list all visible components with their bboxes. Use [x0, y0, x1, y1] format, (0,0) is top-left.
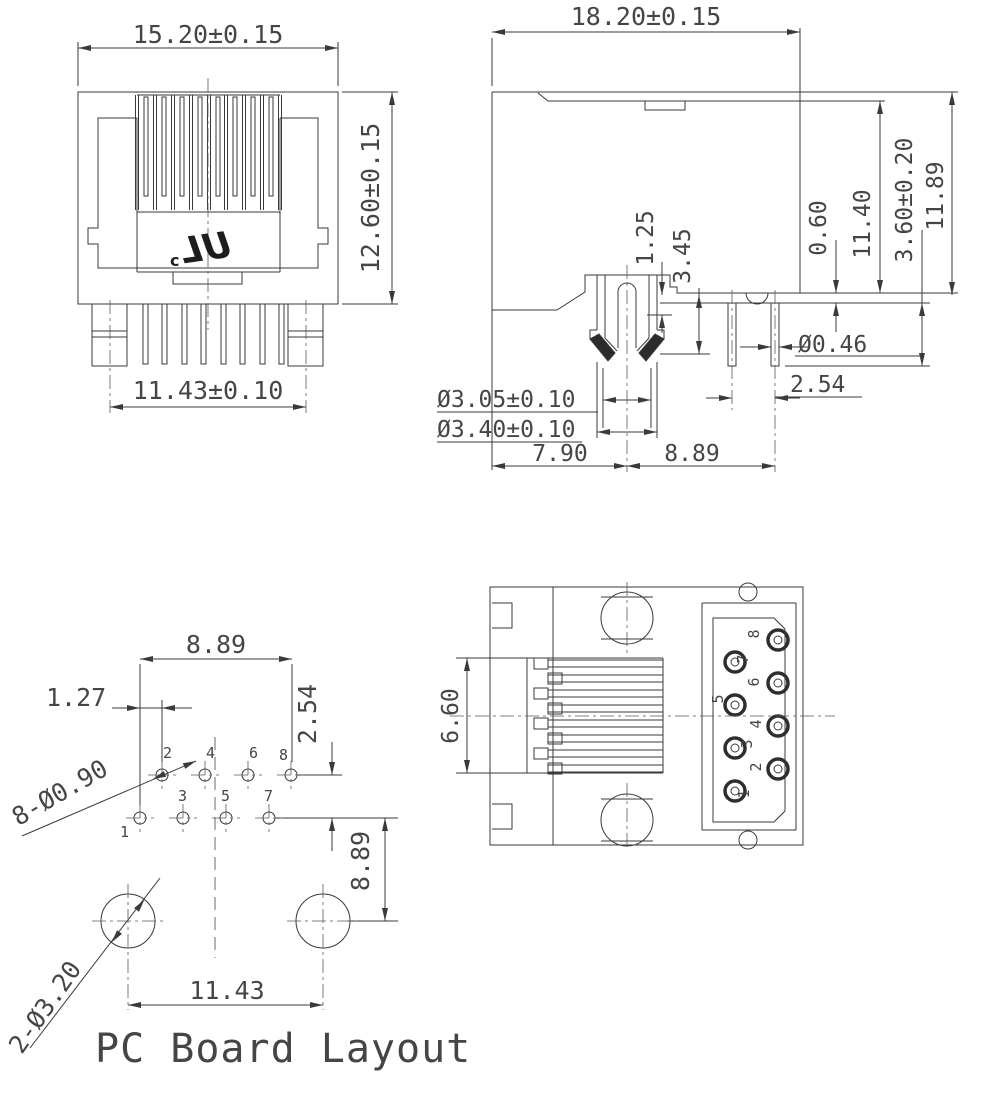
bv-pin-7: 7: [734, 654, 752, 663]
dim-side-width: 18.20±0.15: [571, 2, 722, 31]
front-view: 15.20±0.15 12.60±0.15 11.43±0.10 c UL: [78, 20, 398, 413]
dim-post-outer-dia: Ø3.40±0.10: [437, 417, 575, 443]
pcb-pin-8: 8: [279, 746, 288, 764]
dim-pcb-col-offset: 1.27: [46, 683, 106, 712]
dim-front-pin-span: 11.43±0.10: [133, 376, 284, 405]
pcb-layout-view: 8.89 1.27 2.54 8.89 11.43 8-Ø0.90 2-Ø3.2…: [3, 630, 471, 1072]
dim-latch-depth: 3.45: [670, 228, 696, 283]
dim-post-inner-dia: Ø3.05±0.10: [437, 387, 575, 413]
dim-pin-dia: Ø0.46: [798, 332, 867, 358]
dim-standoff: 0.60: [806, 200, 832, 255]
pcb-pin-4: 4: [206, 744, 215, 762]
connector-technical-drawing: 15.20±0.15 12.60±0.15 11.43±0.10 c UL 18…: [0, 0, 1000, 1097]
bv-pin-8: 8: [745, 629, 763, 638]
bottom-view-centerlines: [450, 582, 835, 850]
dim-overall-height: 11.89: [923, 161, 949, 230]
dim-pin-offset: 8.89: [664, 441, 719, 467]
pcb-pin-5: 5: [221, 787, 230, 805]
dim-pcb-row-span: 8.89: [186, 630, 246, 659]
dim-pcb-mount-span: 11.43: [189, 976, 264, 1005]
dim-front-height: 12.60±0.15: [356, 123, 385, 274]
side-view: 18.20±0.15 0.60 11.40 3.60±0.20 11.89 1.…: [437, 2, 958, 472]
bv-pin-5: 5: [709, 694, 727, 703]
pcb-caption: PC Board Layout: [95, 1026, 471, 1072]
dim-latch-gap: 1.25: [633, 210, 659, 265]
dim-post-offset: 7.90: [532, 441, 587, 467]
edge-boss-top: [739, 583, 757, 601]
bv-pin-1: 1: [735, 789, 753, 798]
pcb-pin-3: 3: [178, 787, 187, 805]
pcb-pin-6: 6: [249, 744, 258, 762]
bottom-view: 6.60 1 2 3 4 5 6 7 8: [438, 582, 835, 850]
pcb-pin-1: 1: [120, 823, 129, 841]
bv-pin-3: 3: [738, 739, 756, 748]
bv-pin-2: 2: [747, 762, 765, 771]
dim-pin-pitch: 2.54: [790, 372, 845, 398]
pcb-pin-2: 2: [163, 744, 172, 762]
ul-logo-text: UL: [177, 225, 234, 273]
front-view-outline: [78, 42, 398, 407]
bv-pin-6: 6: [745, 677, 763, 686]
ul-logo: UL: [177, 225, 234, 273]
pcb-pin-7: 7: [264, 787, 273, 805]
dim-front-width: 15.20±0.15: [133, 20, 284, 49]
dim-pcb-mount-offset: 8.89: [346, 831, 375, 891]
dim-pcb-row-pitch: 2.54: [293, 684, 322, 744]
ul-c-mark: c: [170, 251, 179, 270]
dim-contact-span: 6.60: [438, 688, 464, 743]
pcb-pin-numbers: 1 2 3 4 5 6 7 8: [120, 744, 288, 841]
dim-body-height: 11.40: [850, 189, 876, 258]
edge-boss-bottom: [739, 831, 757, 849]
bv-pin-4: 4: [747, 719, 765, 728]
dim-pin-length: 3.60±0.20: [892, 138, 918, 263]
drawing-canvas: 15.20±0.15 12.60±0.15 11.43±0.10 c UL 18…: [0, 0, 1000, 1097]
label-mount-holes: 2-Ø3.20: [3, 956, 87, 1059]
